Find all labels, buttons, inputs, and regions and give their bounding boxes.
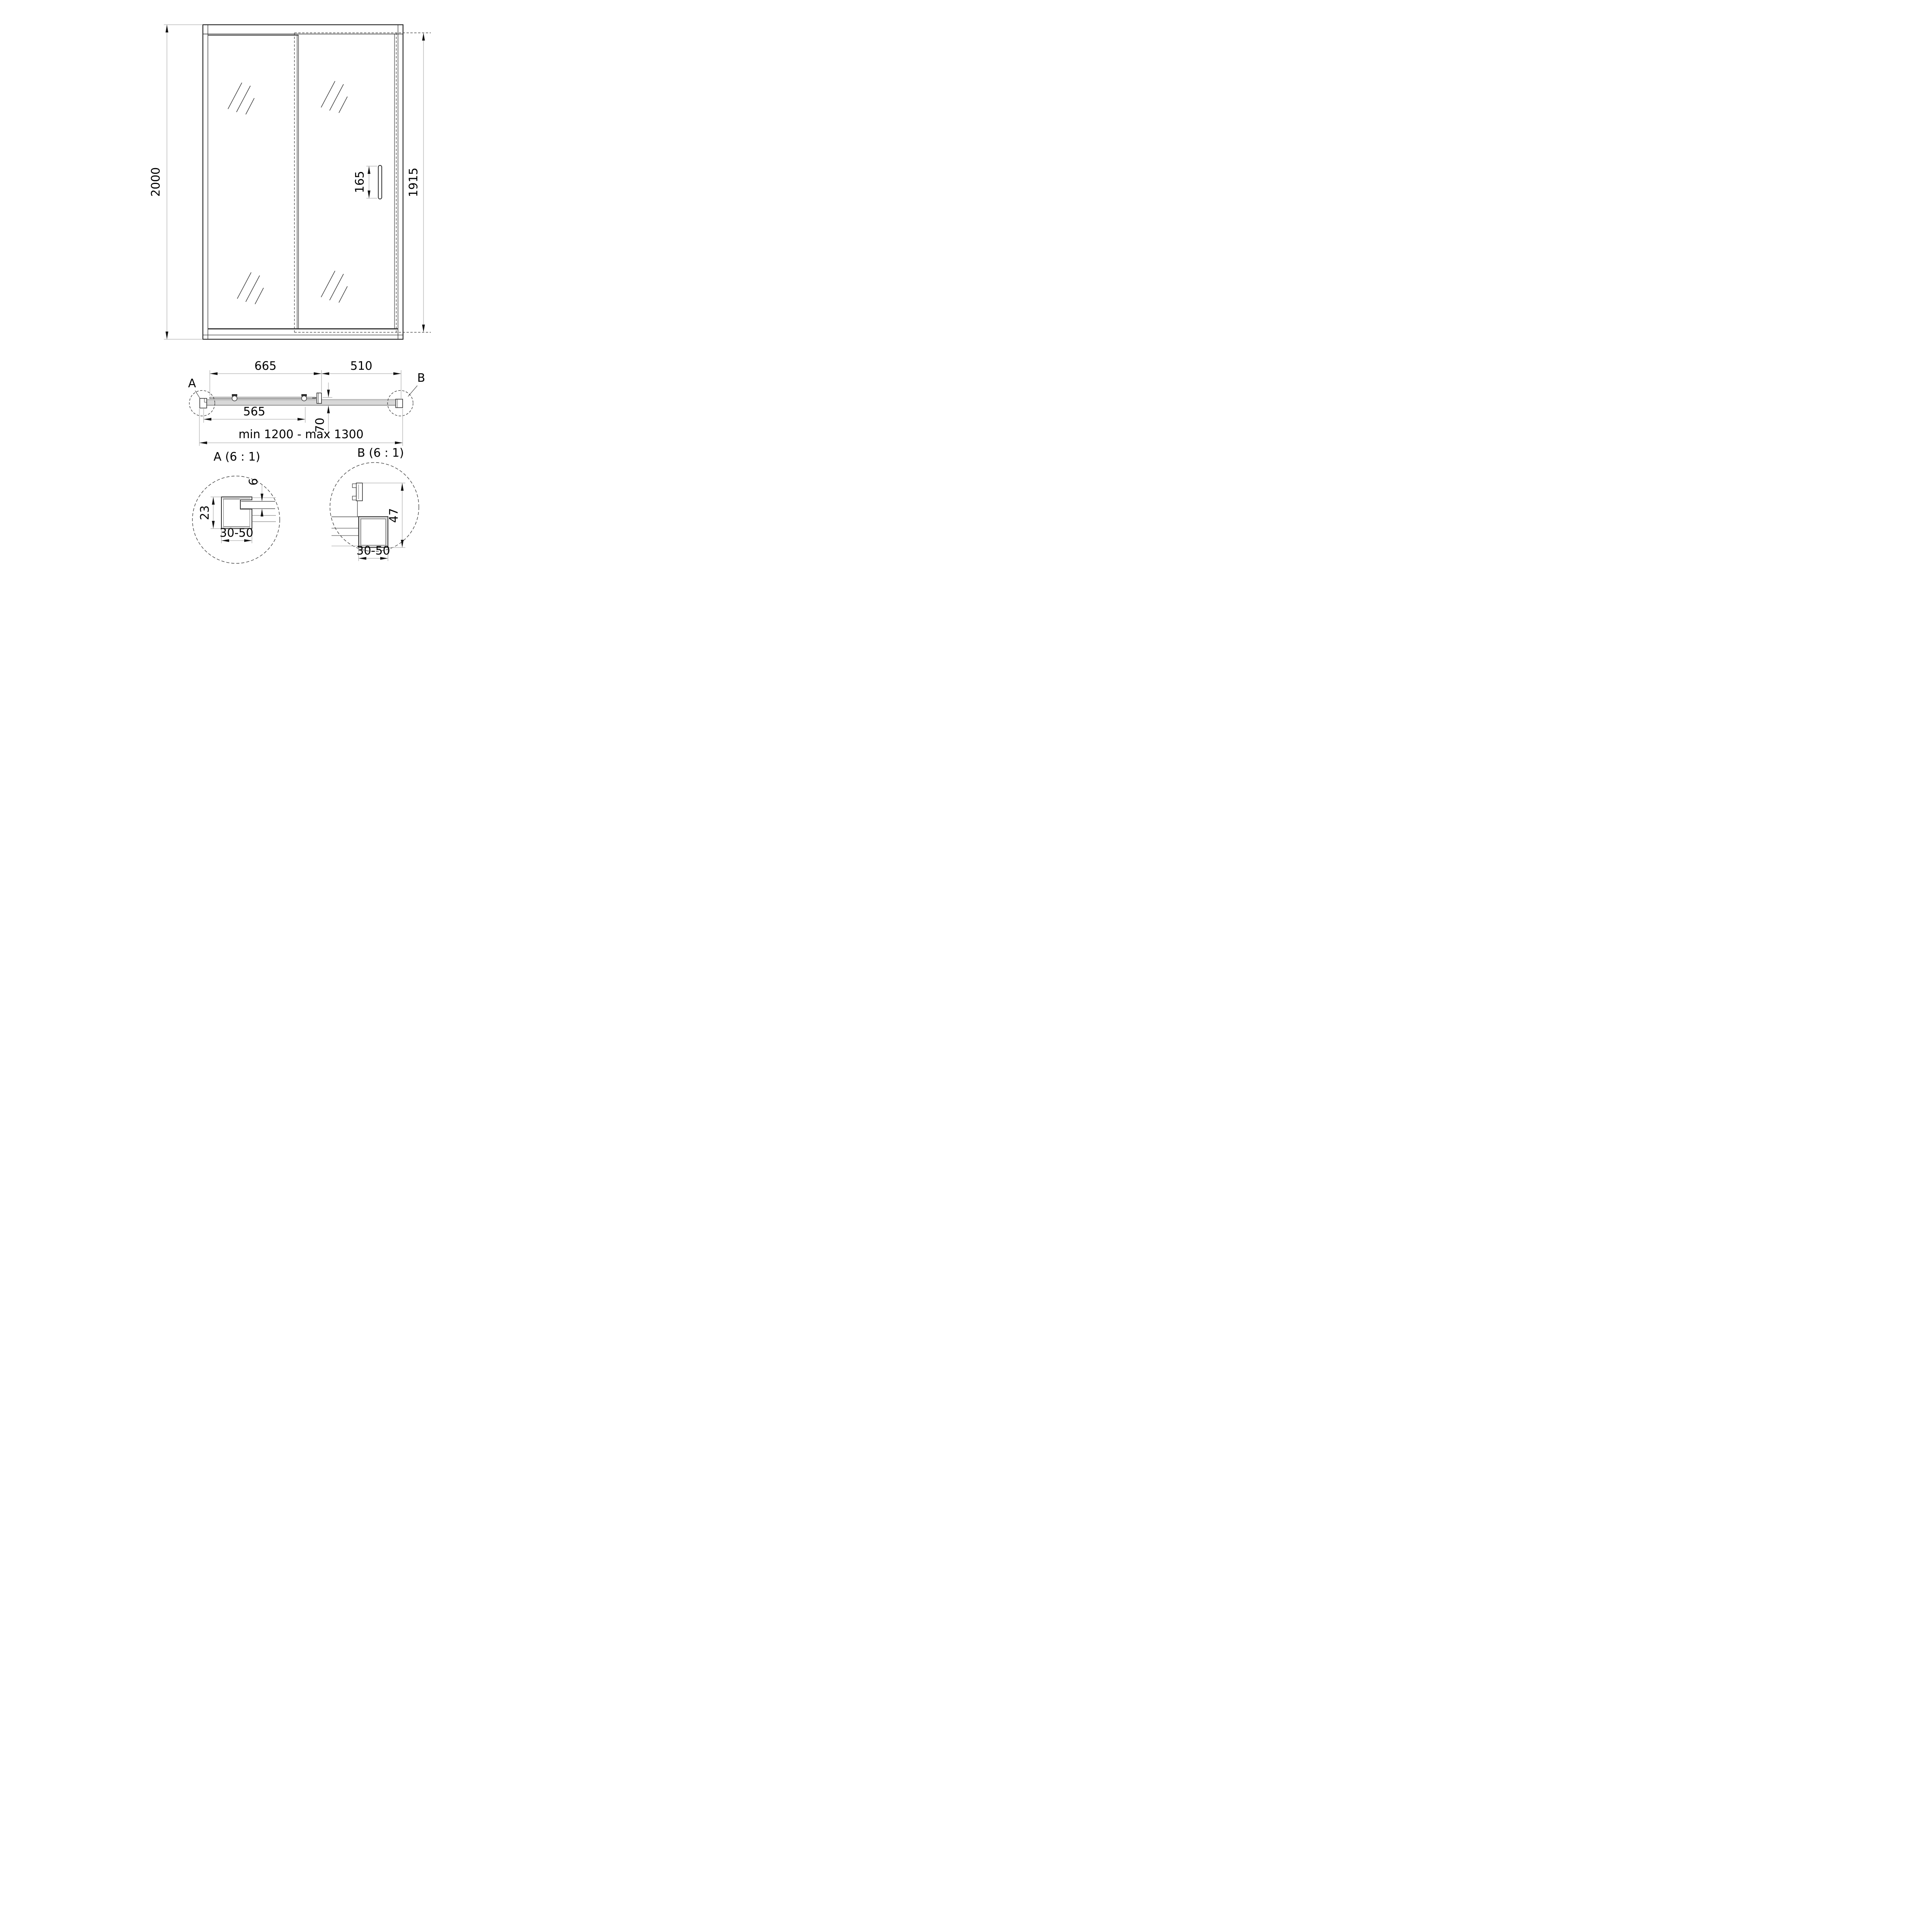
dim-door-glass-height-label: 1915 bbox=[407, 168, 420, 197]
wall-profile-left bbox=[200, 398, 207, 408]
door-handle bbox=[378, 165, 382, 199]
dim-opening-width-label: 565 bbox=[243, 405, 265, 418]
dim-sliding-panel-width: 665 bbox=[210, 359, 321, 396]
dim-fixed-panel-width: 510 bbox=[321, 359, 401, 398]
dim-overall-height-label: 2000 bbox=[149, 167, 163, 197]
dim-width-range: min 1200 - max 1300 bbox=[199, 408, 403, 446]
dim-sliding-panel-width-label: 665 bbox=[254, 359, 276, 373]
detail-a-callout: A bbox=[188, 377, 215, 416]
front-view: 2000 1915 165 bbox=[149, 25, 431, 339]
roller-left bbox=[232, 394, 237, 401]
detail-view-a: A (6 : 1) 23 6 bbox=[192, 450, 280, 563]
roller-right bbox=[301, 394, 307, 401]
dim-profile-depth-label: 23 bbox=[198, 505, 212, 520]
dim-adjustment-range-b-label: 30-50 bbox=[356, 544, 390, 558]
plan-view: A B 665 510 565 bbox=[188, 359, 425, 446]
dim-width-range-label: min 1200 - max 1300 bbox=[238, 428, 364, 441]
detail-b-title: B (6 : 1) bbox=[357, 446, 404, 460]
dim-overall-height: 2000 bbox=[149, 25, 203, 339]
dim-adjustment-range-b: 30-50 bbox=[356, 544, 390, 561]
technical-drawing-page: 2000 1915 165 bbox=[0, 0, 580, 580]
shower-door-technical-drawing: 2000 1915 165 bbox=[0, 0, 580, 580]
door-frame-outline bbox=[203, 25, 403, 339]
dim-handle-length-label: 165 bbox=[353, 171, 367, 193]
detail-a-callout-label: A bbox=[188, 377, 196, 390]
detail-b-wall-profile bbox=[359, 517, 388, 548]
dim-glass-thickness-label: 6 bbox=[247, 478, 260, 485]
dim-adjustment-range-a: 30-50 bbox=[219, 526, 253, 543]
detail-b-callout: B bbox=[388, 371, 425, 416]
detail-view-b: B (6 : 1) 47 bbox=[330, 446, 419, 561]
sliding-glass-section bbox=[210, 397, 316, 399]
detail-b-glass-lines bbox=[332, 517, 359, 546]
wall-profile-right bbox=[396, 399, 403, 408]
dim-door-glass-height: 1915 bbox=[407, 33, 423, 332]
detail-a-wall-profile bbox=[221, 497, 252, 529]
detail-a-title: A (6 : 1) bbox=[214, 450, 260, 464]
dim-panel-offset: 70 bbox=[313, 383, 332, 435]
dim-opening-width: 565 bbox=[204, 405, 305, 423]
dim-profile-height-label: 47 bbox=[387, 508, 401, 523]
dim-adjustment-range-a-label: 30-50 bbox=[219, 526, 253, 540]
dim-fixed-panel-width-label: 510 bbox=[350, 359, 372, 373]
detail-b-track-profile bbox=[352, 483, 362, 517]
detail-b-callout-label: B bbox=[417, 371, 425, 385]
dim-profile-depth: 23 bbox=[198, 497, 221, 529]
